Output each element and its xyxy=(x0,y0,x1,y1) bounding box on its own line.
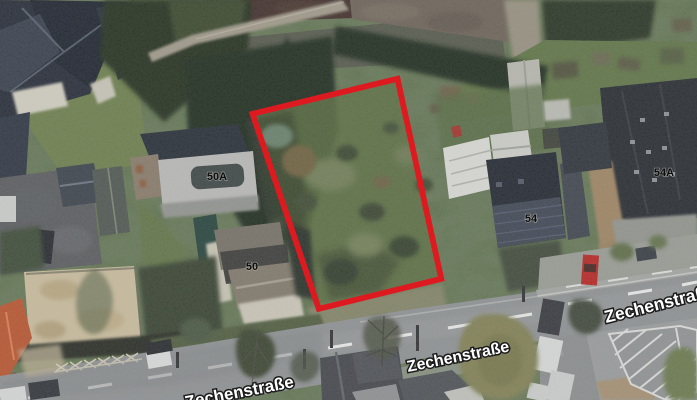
svg-text:54A: 54A xyxy=(654,167,674,179)
svg-text:50: 50 xyxy=(246,261,258,273)
svg-text:50A: 50A xyxy=(207,171,227,183)
svg-text:54: 54 xyxy=(525,213,538,225)
